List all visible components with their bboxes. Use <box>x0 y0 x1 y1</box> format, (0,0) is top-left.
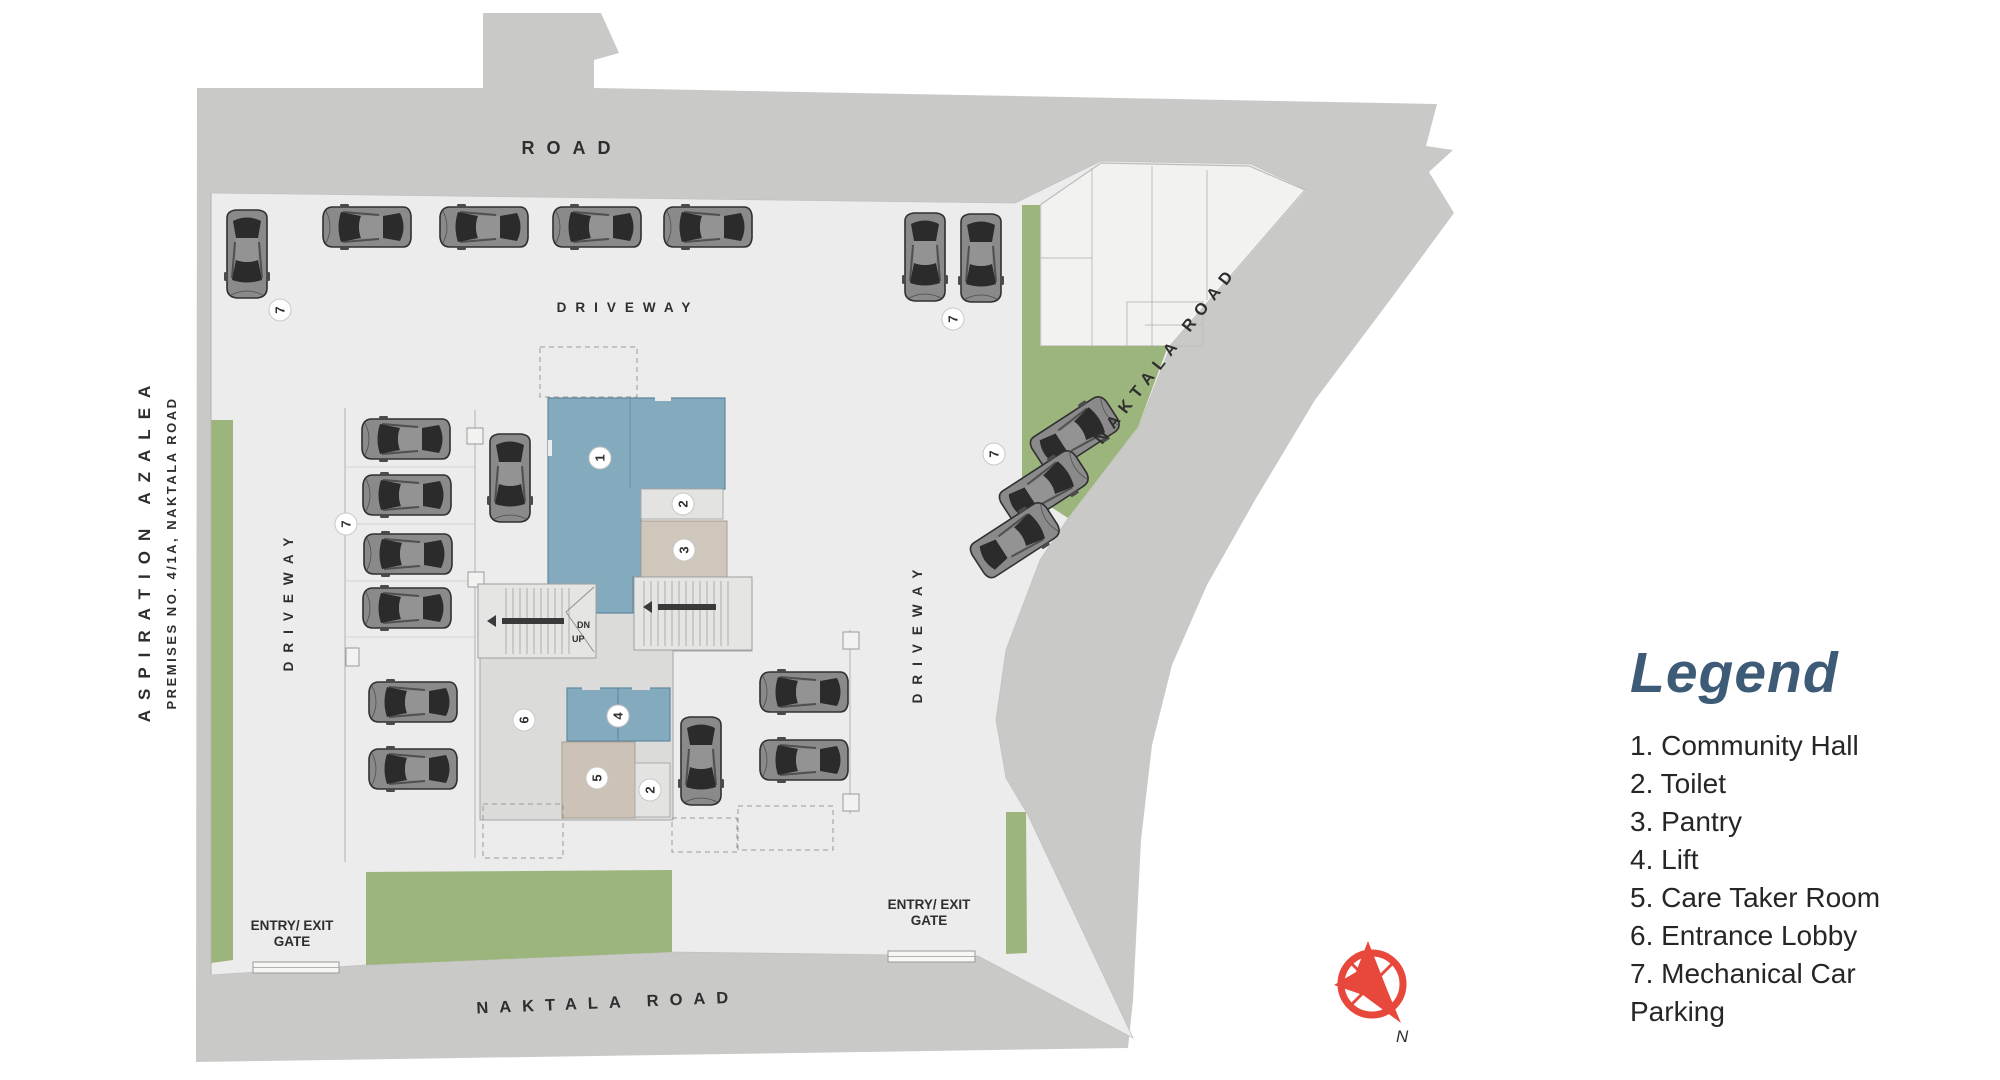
svg-text:ENTRY/ EXIT: ENTRY/ EXIT <box>251 918 335 933</box>
car-icon <box>364 531 452 577</box>
driveway-top-label: DRIVEWAY <box>557 300 700 315</box>
svg-text:ENTRY/ EXIT: ENTRY/ EXIT <box>888 897 972 912</box>
car-icon <box>362 416 450 462</box>
legend-title: Legend <box>1630 642 1900 705</box>
green-sliver-right <box>1006 812 1027 954</box>
staircase-left: DN UP <box>478 584 596 658</box>
car-icon <box>902 213 948 301</box>
car-icon <box>678 717 724 805</box>
svg-text:2: 2 <box>676 500 691 507</box>
car-icon <box>363 472 451 518</box>
plan-marker: 6 <box>513 709 535 731</box>
legend-item: 3. Pantry <box>1630 803 1885 841</box>
green-strip-bottom <box>366 870 672 965</box>
road-top-label: ROAD <box>522 138 623 158</box>
plan-marker: 2 <box>639 779 661 801</box>
svg-text:GATE: GATE <box>911 913 948 928</box>
driveway-right-label: DRIVEWAY <box>910 561 925 704</box>
plan-marker: 7 <box>269 299 291 321</box>
plan-marker: 2 <box>672 493 694 515</box>
entry-exit-gate-right <box>888 951 975 962</box>
car-icon <box>760 669 848 715</box>
legend-item: 4. Lift <box>1630 841 1885 879</box>
plan-marker: 7 <box>335 513 357 535</box>
car-icon <box>760 737 848 783</box>
green-strip-left <box>211 420 233 963</box>
svg-text:6: 6 <box>517 716 532 723</box>
plan-marker: 5 <box>586 767 608 789</box>
site-plan-page: DN UP 12345267777 ROAD DR <box>0 0 2000 1080</box>
car-icon <box>323 204 411 250</box>
car-icon <box>224 210 270 298</box>
svg-text:GATE: GATE <box>274 934 311 949</box>
driveway-left-label: DRIVEWAY <box>281 529 296 672</box>
svg-text:7: 7 <box>273 306 288 313</box>
svg-text:2: 2 <box>643 786 658 793</box>
plan-marker: 4 <box>607 705 629 727</box>
legend-item: 1. Community Hall <box>1630 727 1885 765</box>
car-icon <box>369 679 457 725</box>
north-compass-icon: N <box>1334 941 1409 1046</box>
legend-items: 1. Community Hall2. Toilet3. Pantry4. Li… <box>1630 727 1900 1031</box>
premises-label: PREMISES NO. 4/1A, NAKTALA ROAD <box>164 397 179 710</box>
car-icon <box>440 204 528 250</box>
legend-panel: Legend 1. Community Hall2. Toilet3. Pant… <box>1630 642 1900 1031</box>
entry-exit-gate-left <box>253 962 339 973</box>
stair-dn-label: DN <box>577 620 590 630</box>
legend-item: 5. Care Taker Room <box>1630 879 1885 917</box>
plan-marker: 7 <box>983 443 1005 465</box>
project-name-label: ASPIRATION AZALEA <box>135 376 154 723</box>
svg-text:1: 1 <box>593 454 608 461</box>
car-icon <box>369 746 457 792</box>
svg-text:7: 7 <box>987 450 1002 457</box>
svg-text:7: 7 <box>946 315 961 322</box>
plan-marker: 3 <box>673 539 695 561</box>
car-icon <box>664 204 752 250</box>
car-icon <box>958 214 1004 302</box>
compass-n-label: N <box>1396 1027 1409 1046</box>
stair-up-label: UP <box>572 634 585 644</box>
legend-item: 6. Entrance Lobby <box>1630 917 1885 955</box>
car-icon <box>553 204 641 250</box>
car-icon <box>363 585 451 631</box>
plan-marker: 7 <box>942 308 964 330</box>
svg-text:3: 3 <box>677 546 692 553</box>
svg-text:5: 5 <box>590 774 605 781</box>
legend-item: 7. Mechanical Car Parking <box>1630 955 1885 1031</box>
legend-item: 2. Toilet <box>1630 765 1885 803</box>
svg-text:4: 4 <box>611 712 626 720</box>
staircase-right <box>634 577 752 650</box>
svg-text:7: 7 <box>339 520 354 527</box>
car-icon <box>487 434 533 522</box>
plan-marker: 1 <box>589 447 611 469</box>
